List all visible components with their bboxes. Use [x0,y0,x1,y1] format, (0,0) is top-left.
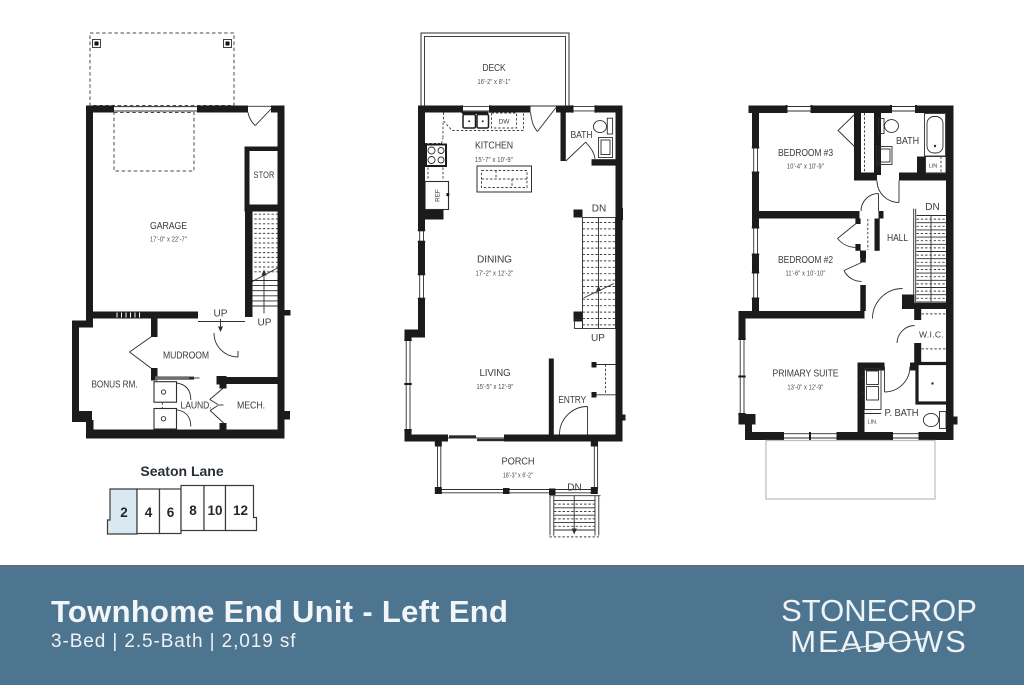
svg-text:16'-2" x 8'-1": 16'-2" x 8'-1" [478,77,511,86]
svg-text:DN: DN [567,483,581,494]
svg-text:W.I.C.: W.I.C. [919,331,944,340]
svg-text:DN: DN [592,204,606,215]
svg-text:4: 4 [145,505,153,520]
svg-text:MUDROOM: MUDROOM [163,351,209,362]
svg-text:DN: DN [925,202,939,213]
svg-text:18'-3" x 6'-2": 18'-3" x 6'-2" [503,471,533,480]
svg-text:LIN: LIN [929,164,938,170]
svg-text:10'-4" x 10'-9": 10'-4" x 10'-9" [787,162,824,171]
svg-text:10: 10 [207,503,222,518]
svg-text:BONUS RM.: BONUS RM. [92,380,138,391]
svg-text:UP: UP [591,333,605,344]
svg-text:P. BATH: P. BATH [885,408,919,419]
svg-text:13'-0" x 12'-9": 13'-0" x 12'-9" [788,383,824,392]
svg-text:BEDROOM #2: BEDROOM #2 [778,255,833,266]
svg-text:12: 12 [233,503,248,518]
svg-text:LAUND.: LAUND. [181,401,212,412]
svg-text:8: 8 [189,503,197,518]
svg-text:11'-6" x 10'-10": 11'-6" x 10'-10" [786,269,826,278]
svg-text:PORCH: PORCH [502,457,535,468]
svg-text:UP: UP [214,309,228,320]
svg-text:BEDROOM #3: BEDROOM #3 [778,148,833,159]
svg-text:GARAGE: GARAGE [150,221,187,232]
svg-text:PRIMARY SUITE: PRIMARY SUITE [773,369,839,380]
svg-text:KITCHEN: KITCHEN [475,141,513,152]
svg-text:LIVING: LIVING [480,368,511,379]
svg-text:REF: REF [435,189,442,202]
svg-text:6: 6 [167,505,175,520]
svg-text:15'-7" x 10'-9": 15'-7" x 10'-9" [475,155,513,164]
svg-text:STOR: STOR [254,170,275,180]
svg-text:MECH.: MECH. [237,401,265,412]
svg-text:BATH: BATH [896,136,919,147]
svg-text:LIN.: LIN. [867,420,878,426]
svg-text:UP: UP [258,318,272,329]
svg-text:2: 2 [120,505,128,520]
svg-text:17'-2" x 12'-2": 17'-2" x 12'-2" [476,269,514,278]
svg-text:DINING: DINING [477,255,512,266]
svg-text:HALL: HALL [887,233,908,244]
svg-text:15'-5" x 12'-9": 15'-5" x 12'-9" [477,382,514,391]
svg-text:DW: DW [499,119,511,126]
svg-text:DECK: DECK [483,63,506,74]
svg-text:BATH: BATH [571,130,593,141]
svg-text:17'-0" x 22'-7": 17'-0" x 22'-7" [150,235,187,244]
svg-text:Seaton Lane: Seaton Lane [140,463,223,479]
svg-text:ENTRY: ENTRY [558,395,586,406]
